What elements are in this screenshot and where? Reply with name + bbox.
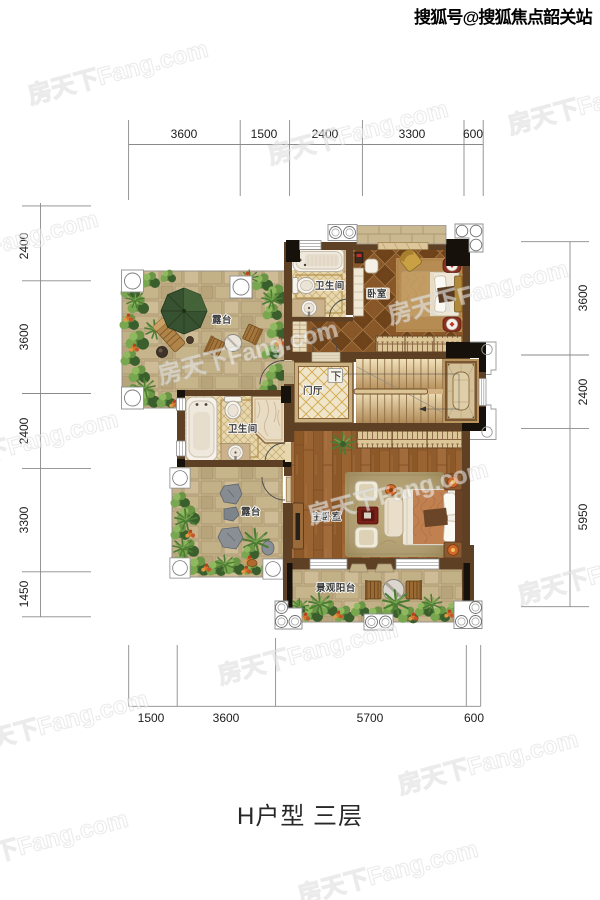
- svg-text:景观阳台: 景观阳台: [315, 582, 356, 594]
- svg-text:露台: 露台: [212, 314, 232, 326]
- svg-text:600: 600: [464, 711, 484, 725]
- svg-text:2400: 2400: [576, 378, 590, 405]
- svg-text:卫生间: 卫生间: [315, 280, 345, 292]
- svg-text:门厅: 门厅: [303, 385, 323, 397]
- svg-text:下: 下: [331, 371, 342, 383]
- svg-text:3600: 3600: [17, 323, 31, 350]
- svg-text:露台: 露台: [241, 506, 261, 518]
- svg-text:5700: 5700: [357, 711, 384, 725]
- svg-text:3300: 3300: [17, 506, 31, 533]
- svg-text:3600: 3600: [213, 711, 240, 725]
- svg-text:1500: 1500: [251, 127, 278, 141]
- svg-text:3600: 3600: [576, 284, 590, 311]
- svg-text:600: 600: [463, 127, 483, 141]
- svg-text:1450: 1450: [17, 580, 31, 607]
- svg-text:3600: 3600: [171, 127, 198, 141]
- svg-text:5950: 5950: [576, 503, 590, 530]
- svg-text:H户型 三层: H户型 三层: [237, 803, 363, 830]
- svg-text:卫生间: 卫生间: [228, 423, 258, 435]
- svg-text:搜狐号@搜狐焦点韶关站: 搜狐号@搜狐焦点韶关站: [414, 7, 593, 27]
- svg-text:卧室: 卧室: [367, 288, 387, 300]
